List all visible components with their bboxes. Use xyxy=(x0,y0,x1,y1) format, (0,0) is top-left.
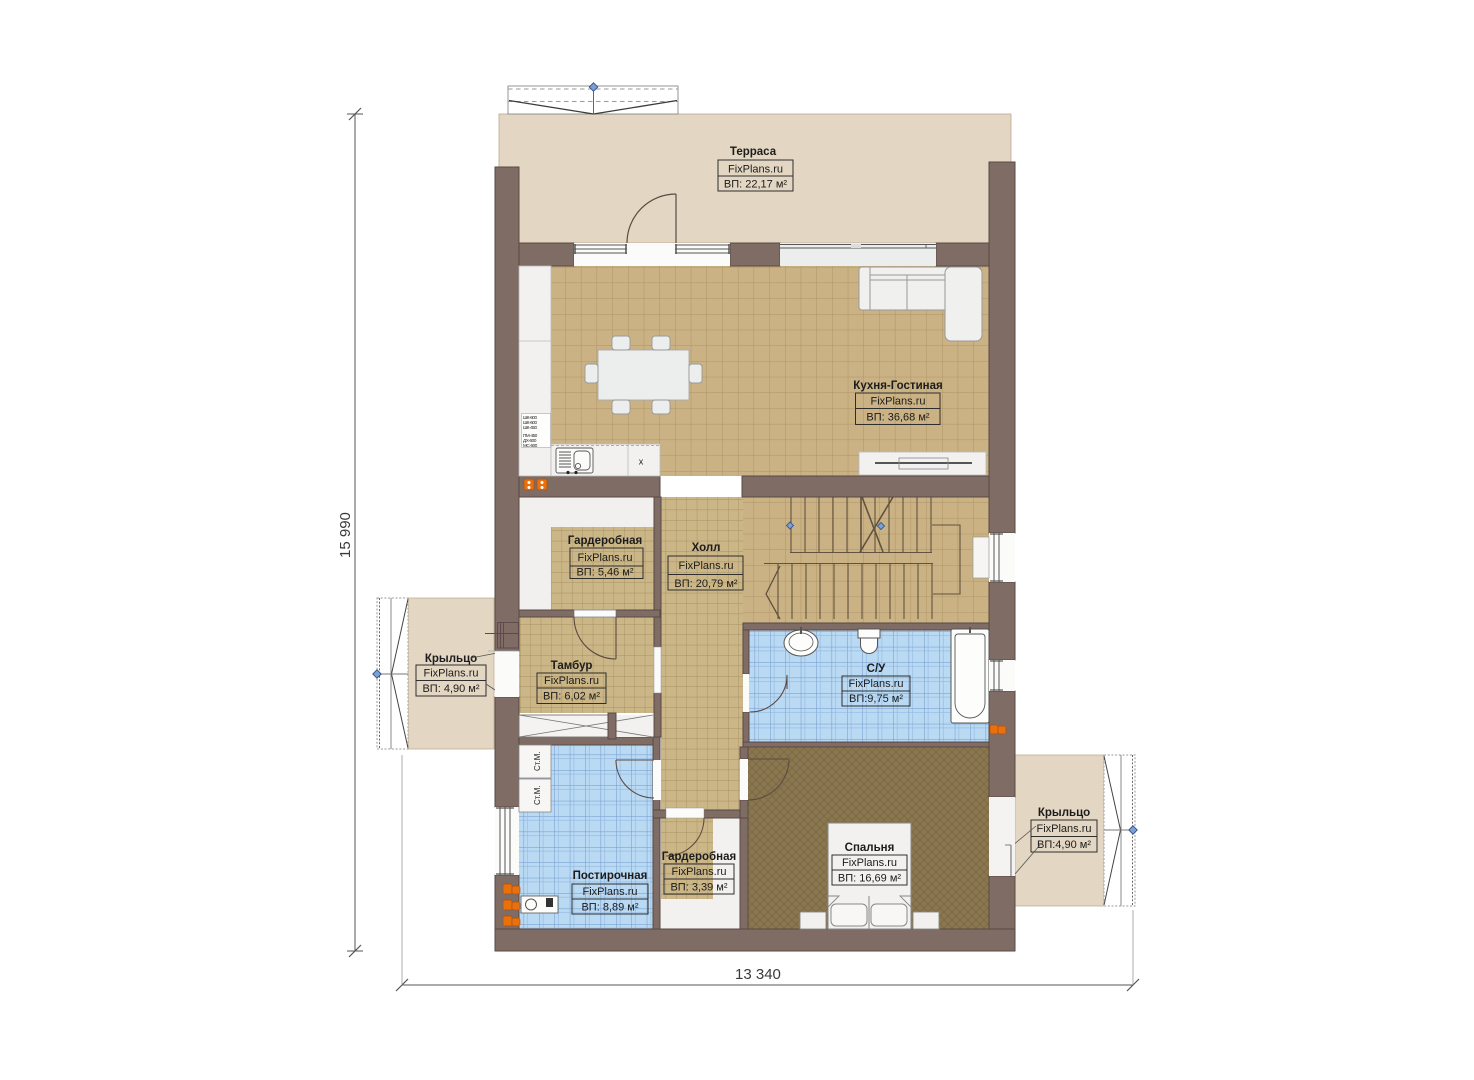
svg-text:FixPlans.ru: FixPlans.ru xyxy=(678,560,733,572)
svg-text:ВП: 22,17 м²: ВП: 22,17 м² xyxy=(724,179,788,191)
svg-text:Кухня-Гостиная: Кухня-Гостиная xyxy=(853,380,942,392)
svg-text:С/У: С/У xyxy=(867,663,887,675)
svg-text:FixPlans.ru: FixPlans.ru xyxy=(842,857,897,869)
svg-text:ВП: 8,89 м²: ВП: 8,89 м² xyxy=(581,902,638,914)
svg-text:МС-600: МС-600 xyxy=(523,443,538,448)
svg-text:Крыльцо: Крыльцо xyxy=(425,653,477,665)
svg-text:FixPlans.ru: FixPlans.ru xyxy=(577,552,632,564)
svg-text:FixPlans.ru: FixPlans.ru xyxy=(544,675,599,687)
svg-text:FixPlans.ru: FixPlans.ru xyxy=(870,396,925,408)
svg-text:Ст.М.: Ст.М. xyxy=(533,751,542,771)
svg-text:Крыльцо: Крыльцо xyxy=(1038,807,1090,819)
svg-text:13 340: 13 340 xyxy=(735,966,781,983)
svg-text:Терраса: Терраса xyxy=(730,146,777,158)
svg-text:ВП: 5,46 м²: ВП: 5,46 м² xyxy=(576,567,633,579)
svg-text:ВП:9,75 м²: ВП:9,75 м² xyxy=(849,693,903,705)
svg-text:Гардеробная: Гардеробная xyxy=(568,535,642,547)
svg-text:Ст.М.: Ст.М. xyxy=(533,785,542,805)
svg-text:ВП: 36,68 м²: ВП: 36,68 м² xyxy=(866,412,930,424)
svg-text:x: x xyxy=(639,457,644,467)
svg-text:FixPlans.ru: FixPlans.ru xyxy=(1036,823,1091,835)
svg-text:ВП: 20,79 м²: ВП: 20,79 м² xyxy=(674,578,738,590)
svg-text:ВП:4,90 м²: ВП:4,90 м² xyxy=(1037,839,1091,851)
svg-text:Гардеробная: Гардеробная xyxy=(662,851,736,863)
svg-text:ВП: 4,90 м²: ВП: 4,90 м² xyxy=(422,683,479,695)
svg-text:FixPlans.ru: FixPlans.ru xyxy=(728,164,783,176)
svg-text:ШК-450: ШК-450 xyxy=(523,425,538,430)
svg-text:FixPlans.ru: FixPlans.ru xyxy=(582,886,637,898)
svg-text:Тамбур: Тамбур xyxy=(551,660,593,672)
svg-text:ВП: 3,39 м²: ВП: 3,39 м² xyxy=(670,882,727,894)
svg-text:Спальня: Спальня xyxy=(845,842,895,854)
svg-text:15 990: 15 990 xyxy=(337,512,354,558)
svg-text:FixPlans.ru: FixPlans.ru xyxy=(848,678,903,690)
svg-text:FixPlans.ru: FixPlans.ru xyxy=(671,866,726,878)
svg-text:Постирочная: Постирочная xyxy=(573,870,648,882)
svg-text:FixPlans.ru: FixPlans.ru xyxy=(423,668,478,680)
svg-text:ВП: 6,02 м²: ВП: 6,02 м² xyxy=(543,691,600,703)
svg-text:Холл: Холл xyxy=(692,542,721,554)
svg-text:ВП: 16,69 м²: ВП: 16,69 м² xyxy=(838,873,902,885)
